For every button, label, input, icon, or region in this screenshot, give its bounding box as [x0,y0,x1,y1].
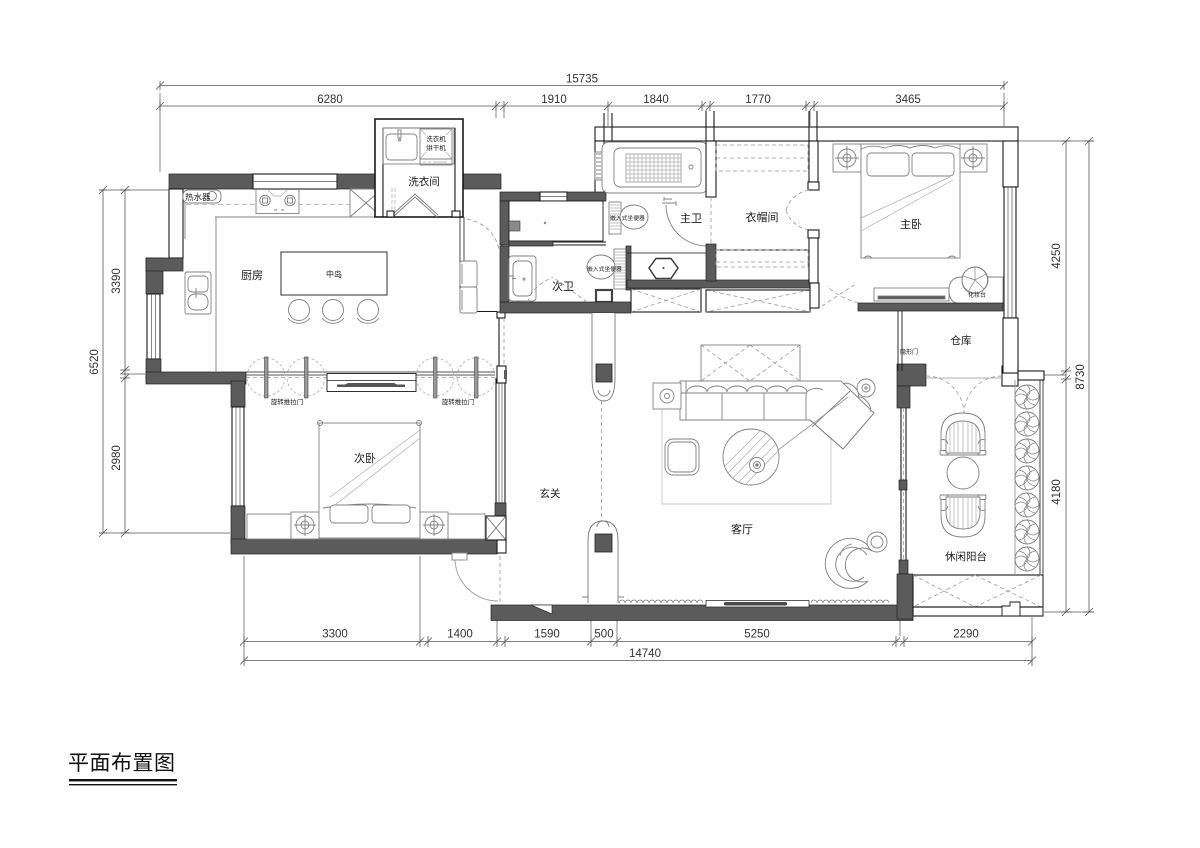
svg-text:旋转推拉门: 旋转推拉门 [442,397,475,406]
svg-text:次卧: 次卧 [354,451,376,465]
svg-text:1840: 1840 [643,94,669,106]
svg-text:1910: 1910 [541,94,567,106]
svg-text:3465: 3465 [895,94,921,106]
svg-text:4180: 4180 [1051,479,1063,505]
svg-text:洗衣间: 洗衣间 [408,175,440,188]
svg-text:1400: 1400 [447,629,473,641]
svg-text:厨房: 厨房 [241,269,263,282]
svg-text:4250: 4250 [1051,243,1063,269]
svg-text:6280: 6280 [317,94,343,106]
svg-text:平面布置图: 平面布置图 [68,751,176,775]
svg-text:热水器: 热水器 [185,192,211,202]
svg-text:洗衣机: 洗衣机 [426,134,446,143]
svg-text:500: 500 [594,629,613,641]
svg-text:主卧: 主卧 [900,218,922,231]
svg-text:6520: 6520 [89,349,101,375]
svg-text:嵌入式坐便器: 嵌入式坐便器 [610,214,645,222]
svg-text:烘干机: 烘干机 [426,143,446,152]
svg-text:中岛: 中岛 [326,269,342,279]
svg-text:嵌入式坐便器: 嵌入式坐便器 [587,265,622,273]
svg-text:14740: 14740 [629,648,661,660]
svg-text:主卫: 主卫 [680,212,702,225]
svg-text:3390: 3390 [111,268,123,294]
svg-text:次卫: 次卫 [552,279,574,293]
svg-text:衣帽间: 衣帽间 [746,210,779,224]
svg-text:化妆台: 化妆台 [968,291,986,299]
svg-text:15735: 15735 [566,74,598,86]
svg-text:2290: 2290 [953,629,979,641]
svg-text:仓库: 仓库 [951,334,972,347]
svg-text:2980: 2980 [111,445,123,471]
svg-text:8730: 8730 [1075,364,1087,390]
svg-text:旋转推拉门: 旋转推拉门 [271,397,304,406]
svg-text:玄关: 玄关 [540,487,561,500]
svg-text:客厅: 客厅 [731,522,753,536]
svg-text:5250: 5250 [744,629,770,641]
svg-text:1770: 1770 [745,94,771,106]
svg-text:休闲阳台: 休闲阳台 [945,550,987,563]
svg-text:隐形门: 隐形门 [900,348,918,356]
svg-text:1590: 1590 [534,629,560,641]
svg-text:3300: 3300 [322,629,348,641]
